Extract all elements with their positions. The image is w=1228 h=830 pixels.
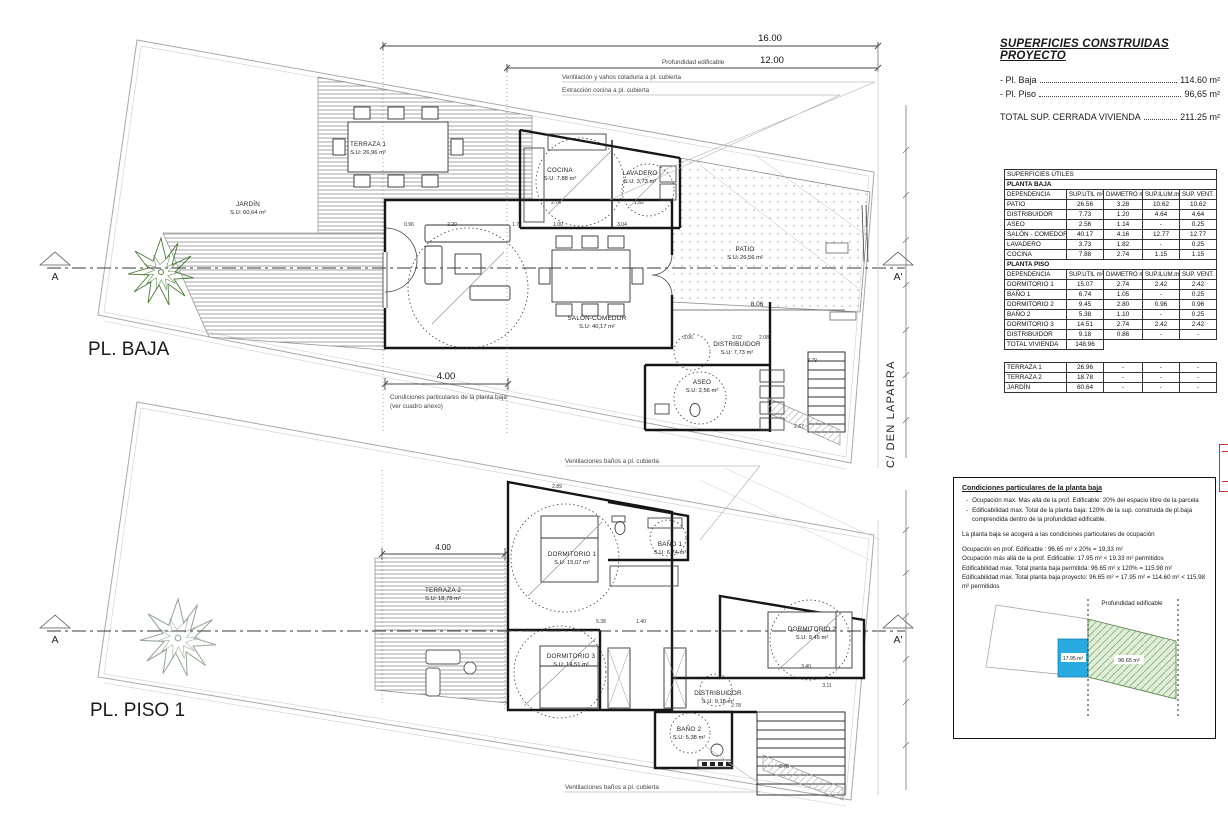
areas-table-cell: 0.86 xyxy=(1104,330,1143,340)
areas-table-cell: 12.77 xyxy=(1180,230,1217,240)
areas-table-row: SALÓN - COMEDOR40.174.1612.7712.77 xyxy=(1005,230,1217,240)
built-area-label: - Pl. Piso xyxy=(1000,89,1036,99)
areas-table-row: TOTAL VIVIENDA148.96 xyxy=(1005,340,1217,350)
dimension-label: 0.96 xyxy=(404,222,414,228)
room-area-label: S.U: 60,64 m² xyxy=(230,210,266,216)
areas-table-cell: 14.51 xyxy=(1067,320,1104,330)
areas-table-cell: TERRAZA 1 xyxy=(1005,363,1067,373)
dotted-leader xyxy=(1040,74,1178,83)
annotation-label: Ventilación y vahos coladuria a pl. cubi… xyxy=(562,74,682,81)
areas-table-cell: 7.73 xyxy=(1067,210,1104,220)
areas-table-cell: 0.25 xyxy=(1180,220,1217,230)
areas-table-cell: 148.96 xyxy=(1067,340,1104,350)
areas-table-cell: 2.74 xyxy=(1104,280,1143,290)
dimension-label: 3.04 xyxy=(617,222,627,228)
areas-table-cell: 4.64 xyxy=(1143,210,1180,220)
annotation-label: Ventilaciones baños a pl. cubierta xyxy=(565,458,659,465)
dimension-label: 1.82 xyxy=(634,200,644,206)
areas-table-cell: 0.25 xyxy=(1180,240,1217,250)
room-area-label: S.U: 5,38 m² xyxy=(673,735,706,741)
built-area-row: - Pl. Piso 96,65 m² xyxy=(1000,88,1220,99)
areas-table-cell: - xyxy=(1143,373,1180,383)
areas-table-cell: 5.38 xyxy=(1067,310,1104,320)
dimension-label: 3.06 xyxy=(683,335,693,341)
areas-table-cell: 1.05 xyxy=(1104,290,1143,300)
areas-table-cell: 1.10 xyxy=(1104,310,1143,320)
areas-table-cell: - xyxy=(1143,383,1180,393)
conditions-title: Condiciones particulares de la planta ba… xyxy=(962,485,1207,492)
dimension-label: 1.40 xyxy=(636,619,646,625)
areas-table-cell: 12.77 xyxy=(1143,230,1180,240)
areas-table-cell: 6.74 xyxy=(1067,290,1104,300)
calc-line: Edificabilidad max. Total planta baja pe… xyxy=(962,564,1207,573)
areas-table-cell: 1.20 xyxy=(1104,210,1143,220)
areas-table-cell: 2.80 xyxy=(1104,300,1143,310)
room-label: ASEO xyxy=(693,379,711,386)
room-area-label: S.U: 3,73 m² xyxy=(624,179,657,185)
areas-table-cell: SUPERFICIES ÚTILES xyxy=(1005,170,1217,180)
areas-table-cell xyxy=(1104,340,1217,350)
areas-table-cell: 0.25 xyxy=(1180,290,1217,300)
areas-table-cell: - xyxy=(1180,363,1217,373)
areas-table-cell: PLANTA PISO xyxy=(1005,260,1217,270)
dimension-label: 1.00 xyxy=(553,222,563,228)
areas-table-row: LAVADERO3.731.82-0.25 xyxy=(1005,240,1217,250)
built-area-value: 114.60 m² xyxy=(1180,75,1220,85)
section-marker-a2-piso: A' xyxy=(893,634,902,646)
areas-table-cell: 1.14 xyxy=(1104,220,1143,230)
buildable-depth-diagram: 17.95 m² 96.65 m² Profundidad edificable xyxy=(962,595,1208,723)
room-label: BAÑO 2 xyxy=(677,724,702,733)
areas-table-cell: TERRAZA 2 xyxy=(1005,373,1067,383)
areas-table-cell: COCINA xyxy=(1005,250,1067,260)
areas-table-row: PLANTA PISO xyxy=(1005,260,1217,270)
areas-table-cell: 26.96 xyxy=(1067,363,1104,373)
areas-table-row: JARDÍN60.64--- xyxy=(1005,383,1217,393)
built-areas-title-block: SUPERFICIES CONSTRUIDAS PROYECTO - Pl. B… xyxy=(1000,38,1220,122)
room-label: DORMITORIO 3 xyxy=(547,653,596,660)
areas-table-cell: 3.28 xyxy=(1104,200,1143,210)
areas-table-row: DISTRIBUIDOR9.180.86-- xyxy=(1005,330,1217,340)
plan-baja-title: PL. BAJA xyxy=(88,339,170,360)
room-label: SALÓN-COMEDOR xyxy=(568,313,627,322)
areas-table-cell: 1.15 xyxy=(1180,250,1217,260)
conditions-box: Condiciones particulares de la planta ba… xyxy=(953,477,1216,739)
bed-dorm1 xyxy=(541,516,598,582)
room-label: DORMITORIO 1 xyxy=(548,551,597,558)
areas-table-cell: 10.62 xyxy=(1143,200,1180,210)
room-label: DISTRIBUIDOR xyxy=(713,341,761,348)
room-area-label: S.U: 9,18 m² xyxy=(702,699,735,705)
areas-table-cell: 9.18 xyxy=(1067,330,1104,340)
areas-table-row: DORMITORIO 314.512.742.422.42 xyxy=(1005,320,1217,330)
areas-table-cell: 0.96 xyxy=(1180,300,1217,310)
room-area-label: S.U: 9,45 m² xyxy=(796,635,829,641)
depth-label: Profundidad edificable xyxy=(1101,600,1163,607)
calc-line: Ocupación más allá de la prof. Edificabl… xyxy=(962,554,1207,563)
areas-table-row: PATIO26.563.2810.6210.62 xyxy=(1005,200,1217,210)
bullet-text: Edificabilidad max. Total de la planta b… xyxy=(972,507,1207,525)
room-label: DISTRIBUIDOR xyxy=(694,690,742,697)
bullet-dash: - xyxy=(966,507,968,525)
built-area-value: 96,65 m² xyxy=(1184,89,1220,99)
areas-table-cell: DIAMETRO m. xyxy=(1104,270,1143,280)
useful-areas-table-wrap: SUPERFICIES ÚTILESPLANTA BAJADEPENDENCIA… xyxy=(1004,169,1218,393)
dimension-label: 2.67 xyxy=(794,424,804,430)
areas-table-row xyxy=(1005,350,1217,363)
areas-table-cell: SUP.UTIL m² xyxy=(1067,190,1104,200)
dimension-label: 2.79 xyxy=(807,358,817,364)
areas-table-cell: - xyxy=(1143,240,1180,250)
areas-table-cell: 10.62 xyxy=(1180,200,1217,210)
room-area-label: S.U: 15,07 m² xyxy=(554,560,590,566)
areas-table-row: BAÑO 16.741.05-0.25 xyxy=(1005,290,1217,300)
dotted-leader xyxy=(1039,88,1181,97)
annotation-label: Profundidad edificable xyxy=(662,59,725,66)
areas-table-cell: DISTRIBUIDOR xyxy=(1005,330,1067,340)
areas-table-cell: SUP.ILUM.m² xyxy=(1143,270,1180,280)
dimension-label: 2.02 xyxy=(732,335,742,341)
areas-table-cell: DORMITORIO 3 xyxy=(1005,320,1067,330)
dimension-label: 2.74 xyxy=(551,200,561,206)
areas-table-cell: SUP.UTIL m² xyxy=(1067,270,1104,280)
dim-16: 16.00 xyxy=(758,33,782,44)
areas-table-cell: 2.42 xyxy=(1180,280,1217,290)
areas-table-cell: DORMITORIO 2 xyxy=(1005,300,1067,310)
areas-table-cell: 2.42 xyxy=(1143,320,1180,330)
room-label: TERRAZA 1 xyxy=(350,141,386,148)
areas-table-cell: DEPENDENCIA xyxy=(1005,270,1067,280)
drawing-sheet: PL. BAJA PL. PISO 1 A A' A A' C/ DEN LAP… xyxy=(0,0,1228,830)
dimension-label: 2.89 xyxy=(552,484,562,490)
room-label: PATIO xyxy=(736,246,755,253)
room-area-label: S.U: 26,56 m² xyxy=(727,255,763,261)
room-label: BAÑO 1 xyxy=(658,539,683,548)
conditions-bullet: - Edificabilidad max. Total de la planta… xyxy=(966,507,1207,525)
areas-table-row: DISTRIBUIDOR7.731.204.644.64 xyxy=(1005,210,1217,220)
plan-piso-title: PL. PISO 1 xyxy=(90,700,185,721)
areas-table-cell: 2.74 xyxy=(1104,250,1143,260)
dimension-label: 5.38 xyxy=(596,619,606,625)
areas-table-cell: 26.56 xyxy=(1067,200,1104,210)
areas-table-cell: - xyxy=(1104,373,1143,383)
areas-table-cell: - xyxy=(1143,330,1180,340)
areas-table-cell: ASEO xyxy=(1005,220,1067,230)
blue-area-label: 17.95 m² xyxy=(1063,656,1084,662)
areas-table-cell: BAÑO 2 xyxy=(1005,310,1067,320)
areas-table-cell: DIAMETRO m. xyxy=(1104,190,1143,200)
areas-table-cell: - xyxy=(1104,363,1143,373)
room-area-label: S.U: 7,88 m² xyxy=(544,176,577,182)
total-area-label: TOTAL SUP. CERRADA VIVIENDA xyxy=(1000,112,1141,122)
areas-table-row: PLANTA BAJA xyxy=(1005,180,1217,190)
dimension-label: 2.78 xyxy=(779,764,789,770)
dimension-label: 3.11 xyxy=(822,683,832,689)
room-label: DORMITORIO 2 xyxy=(788,626,837,633)
section-marker-a-piso: A xyxy=(51,634,58,646)
room-area-label: S.U: 18,78 m² xyxy=(425,596,461,602)
areas-table-cell: 2.42 xyxy=(1143,280,1180,290)
section-marker-a2-baja: A' xyxy=(893,271,902,283)
built-area-row: - Pl. Baja 114.60 m² xyxy=(1000,74,1220,85)
areas-table-row: TERRAZA 218.78--- xyxy=(1005,373,1217,383)
areas-table-cell: LAVADERO xyxy=(1005,240,1067,250)
areas-table-cell: 18.78 xyxy=(1067,373,1104,383)
dotted-leader xyxy=(1144,111,1177,120)
areas-table-cell: 0.25 xyxy=(1180,310,1217,320)
areas-table-cell: 4.16 xyxy=(1104,230,1143,240)
dim-patio: 8.06 xyxy=(751,301,764,308)
room-label: TERRAZA 2 xyxy=(425,587,461,594)
areas-table-cell: - xyxy=(1143,220,1180,230)
areas-table-cell: - xyxy=(1104,383,1143,393)
conditions-bullet: - Ocupación max. Más allá de la prof. Ed… xyxy=(966,497,1207,506)
dim-12: 12.00 xyxy=(760,55,784,66)
plan-baja xyxy=(40,40,913,560)
calc-line: Edificabilidad max. Total planta baja pr… xyxy=(962,573,1207,592)
dim-4-baja: 4.00 xyxy=(437,371,456,382)
room-label: LAVADERO xyxy=(623,170,658,177)
room-area-label: S.U: 2,56 m² xyxy=(686,388,719,394)
areas-table-row: ASEO2.561.14-0.25 xyxy=(1005,220,1217,230)
room-area-label: S.U: 7,73 m² xyxy=(721,350,754,356)
room-area-label: S.U: 6,74 m² xyxy=(654,550,687,556)
room-label: JARDÍN xyxy=(236,199,260,208)
areas-table-cell: 4.64 xyxy=(1180,210,1217,220)
bullet-dash: - xyxy=(966,497,968,506)
dimension-label: 2.08 xyxy=(759,335,769,341)
bullet-text: Ocupación max. Más allá de la prof. Edif… xyxy=(972,497,1199,506)
dimension-label: 1.77 xyxy=(512,222,522,228)
areas-table-cell: DORMITORIO 1 xyxy=(1005,280,1067,290)
areas-table-cell: JARDÍN xyxy=(1005,383,1067,393)
areas-table-cell: SALÓN - COMEDOR xyxy=(1005,230,1067,240)
annotation-label: (ver cuadro anexo) xyxy=(390,403,443,410)
areas-table-cell: 9.45 xyxy=(1067,300,1104,310)
areas-table-cell: SUP. VENT. m² xyxy=(1180,190,1217,200)
areas-table-cell: 2.56 xyxy=(1067,220,1104,230)
built-area-label: - Pl. Baja xyxy=(1000,75,1037,85)
total-area-row: TOTAL SUP. CERRADA VIVIENDA 211.25 m² xyxy=(1000,111,1220,122)
room-area-label: S.U: 14,51 m² xyxy=(553,662,589,668)
annotation-label: Condiciones particulares de la planta ba… xyxy=(390,394,507,401)
areas-table-cell: - xyxy=(1180,383,1217,393)
areas-table-cell: 2.74 xyxy=(1104,320,1143,330)
areas-table-cell: - xyxy=(1180,373,1217,383)
annotation-label: Extracción cocina a pl. cubierta xyxy=(562,87,650,94)
areas-table-row: BAÑO 25.381.10-0.25 xyxy=(1005,310,1217,320)
areas-table-cell: - xyxy=(1143,310,1180,320)
areas-table-cell: - xyxy=(1143,363,1180,373)
calc-line: Ocupación en prof. Edificable : 96.65 m²… xyxy=(962,545,1207,554)
total-area-value: 211.25 m² xyxy=(1180,112,1220,122)
green-area-label: 96.65 m² xyxy=(1118,658,1140,664)
conditions-note: La planta baja se acogerá a las condicio… xyxy=(962,531,1207,538)
areas-table-row: TERRAZA 126.96--- xyxy=(1005,363,1217,373)
areas-table-cell: SUP. VENT. m² xyxy=(1180,270,1217,280)
plan-piso xyxy=(40,402,913,806)
areas-table-cell: SUP.ILUM.m² xyxy=(1143,190,1180,200)
room-label: COCINA xyxy=(547,167,573,174)
areas-table-cell xyxy=(1005,350,1217,363)
revision-stamp xyxy=(1219,444,1228,492)
areas-table-cell: 40.17 xyxy=(1067,230,1104,240)
tree-icon xyxy=(140,599,216,676)
annotation-label: Ventilaciones baños a pl. cubierta xyxy=(565,784,659,791)
areas-table-row: COCINA7.882.741.151.15 xyxy=(1005,250,1217,260)
areas-table-row: DEPENDENCIASUP.UTIL m²DIAMETRO m.SUP.ILU… xyxy=(1005,190,1217,200)
areas-table-row: DEPENDENCIASUP.UTIL m²DIAMETRO m.SUP.ILU… xyxy=(1005,270,1217,280)
areas-table-cell: DISTRIBUIDOR xyxy=(1005,210,1067,220)
areas-table-cell: 1.15 xyxy=(1143,250,1180,260)
areas-table-cell: 15.07 xyxy=(1067,280,1104,290)
built-areas-title: SUPERFICIES CONSTRUIDAS PROYECTO xyxy=(1000,38,1220,62)
areas-table-row: DORMITORIO 29.452.800.960.96 xyxy=(1005,300,1217,310)
useful-areas-table: SUPERFICIES ÚTILESPLANTA BAJADEPENDENCIA… xyxy=(1004,169,1217,393)
areas-table-cell: 7.88 xyxy=(1067,250,1104,260)
areas-table-cell: 60.64 xyxy=(1067,383,1104,393)
areas-table-cell: PLANTA BAJA xyxy=(1005,180,1217,190)
areas-table-cell: 3.73 xyxy=(1067,240,1104,250)
section-marker-a-baja: A xyxy=(51,271,58,283)
dimension-label: 3.40 xyxy=(801,664,811,670)
areas-table-cell: 2.42 xyxy=(1180,320,1217,330)
areas-table-cell: TOTAL VIVIENDA xyxy=(1005,340,1067,350)
dimension-label: 2.20 xyxy=(447,222,457,228)
areas-table-cell: - xyxy=(1143,290,1180,300)
street-label: C/ DEN LAPARRA xyxy=(885,360,897,468)
dimension-label: 2.78 xyxy=(731,703,741,709)
areas-table-cell: 0.96 xyxy=(1143,300,1180,310)
dim-4-piso: 4.00 xyxy=(435,543,451,552)
areas-table-cell: 1.82 xyxy=(1104,240,1143,250)
areas-table-cell: DEPENDENCIA xyxy=(1005,190,1067,200)
areas-table-cell: PATIO xyxy=(1005,200,1067,210)
areas-table-cell: BAÑO 1 xyxy=(1005,290,1067,300)
room-area-label: S.U: 40,17 m² xyxy=(579,324,615,330)
areas-table-row: SUPERFICIES ÚTILES xyxy=(1005,170,1217,180)
room-area-label: S.U: 26,96 m² xyxy=(350,150,386,156)
areas-table-row: DORMITORIO 115.072.742.422.42 xyxy=(1005,280,1217,290)
patio-area xyxy=(672,158,870,312)
areas-table-cell: - xyxy=(1180,330,1217,340)
